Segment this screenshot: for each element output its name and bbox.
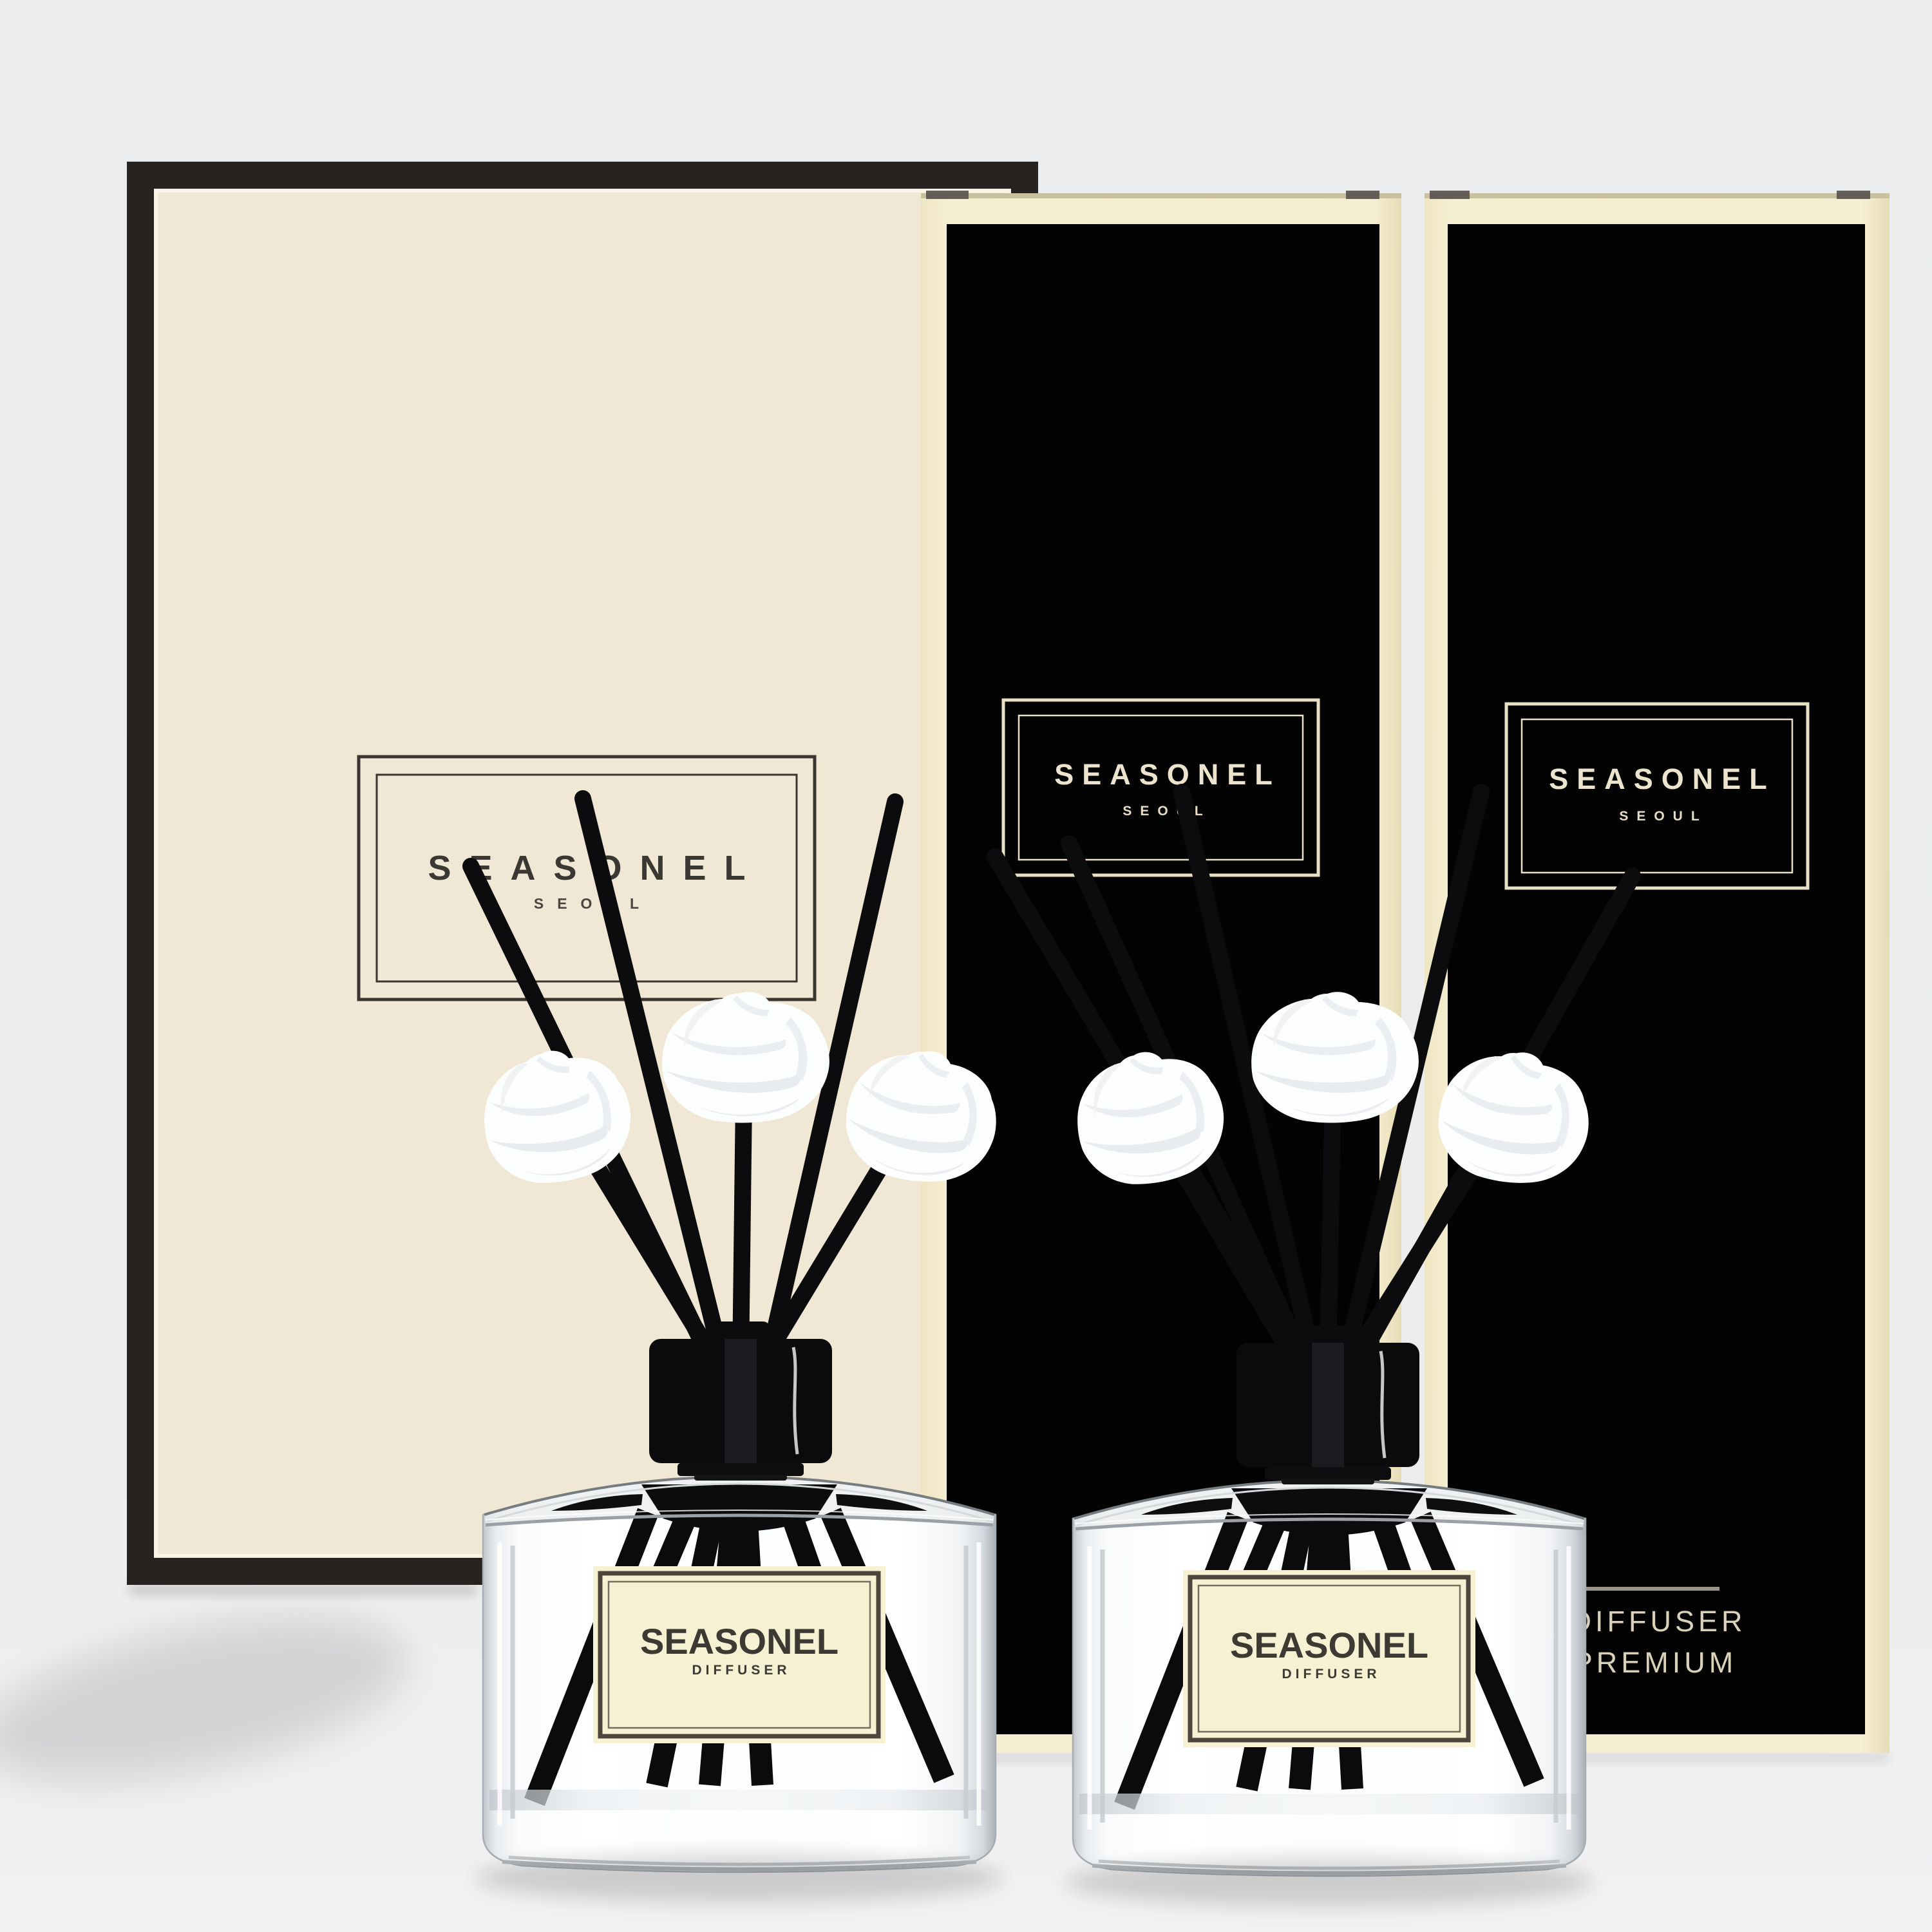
svg-text:SEOUL: SEOUL xyxy=(1619,809,1707,824)
svg-text:SEOUL: SEOUL xyxy=(1122,804,1211,819)
svg-text:DIFFUSER: DIFFUSER xyxy=(1571,1605,1747,1638)
svg-text:SEASONEL: SEASONEL xyxy=(1054,758,1281,791)
svg-text:PREMIUM: PREMIUM xyxy=(1573,1646,1738,1679)
svg-text:SEASONEL: SEASONEL xyxy=(1549,762,1776,795)
svg-text:SEOUL: SEOUL xyxy=(534,895,652,912)
